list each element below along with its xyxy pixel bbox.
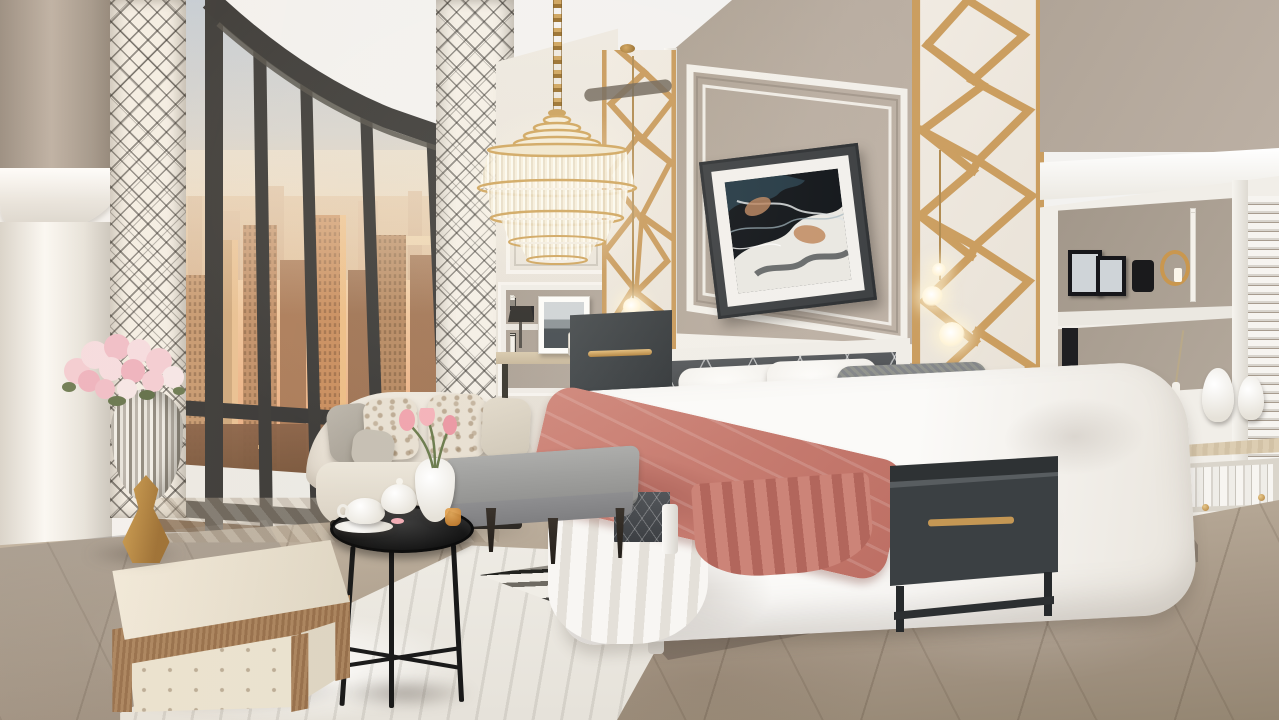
artwork-canvas [725,168,852,293]
desk-lamp-stem [519,322,522,348]
macaron [391,518,404,524]
nightstand-left [570,310,672,398]
rose-bouquet [55,325,195,421]
sofa-pillow-beige [480,397,531,459]
footboard-post [662,504,678,554]
cabinet-knob [1258,494,1265,501]
abstract-artwork [699,143,877,319]
sugar-bowl [381,484,417,514]
white-vase [1238,376,1264,420]
pendant-globe [939,322,965,348]
cabinet-knob [1202,504,1209,511]
sugar-bowl-knob [396,478,403,485]
ottoman [105,540,350,712]
upper-niche-books [1190,206,1232,302]
pendant-globe [922,286,943,307]
column-capital [0,168,122,230]
chandelier-chain [553,0,562,116]
crystal-chandelier [475,108,640,268]
pendant-cord-right [939,150,941,280]
teacup [345,498,385,524]
table-cross-brace [337,638,467,678]
camera-prop [1132,260,1154,292]
pendant-ceiling-mount [620,44,635,53]
ring-candleholder [1160,250,1190,286]
pendant-globe [932,263,946,277]
teacup-handle [337,504,349,518]
white-vase [1202,368,1234,422]
nightstand-right [890,456,1062,634]
tulips [383,408,463,470]
photo-frame [1096,256,1126,296]
floor-vase-roses [55,325,195,565]
table-shadow [335,678,475,708]
wall-pilaster-upper [0,0,114,176]
drawer-handle [588,349,652,357]
table-leg [389,550,394,708]
amber-glass [445,508,461,526]
candle [1174,268,1182,282]
upper-wall-right [1040,0,1279,152]
bedroom-render: FINE WINES Man and Piano [0,0,1279,720]
desk-lamp [508,306,534,322]
